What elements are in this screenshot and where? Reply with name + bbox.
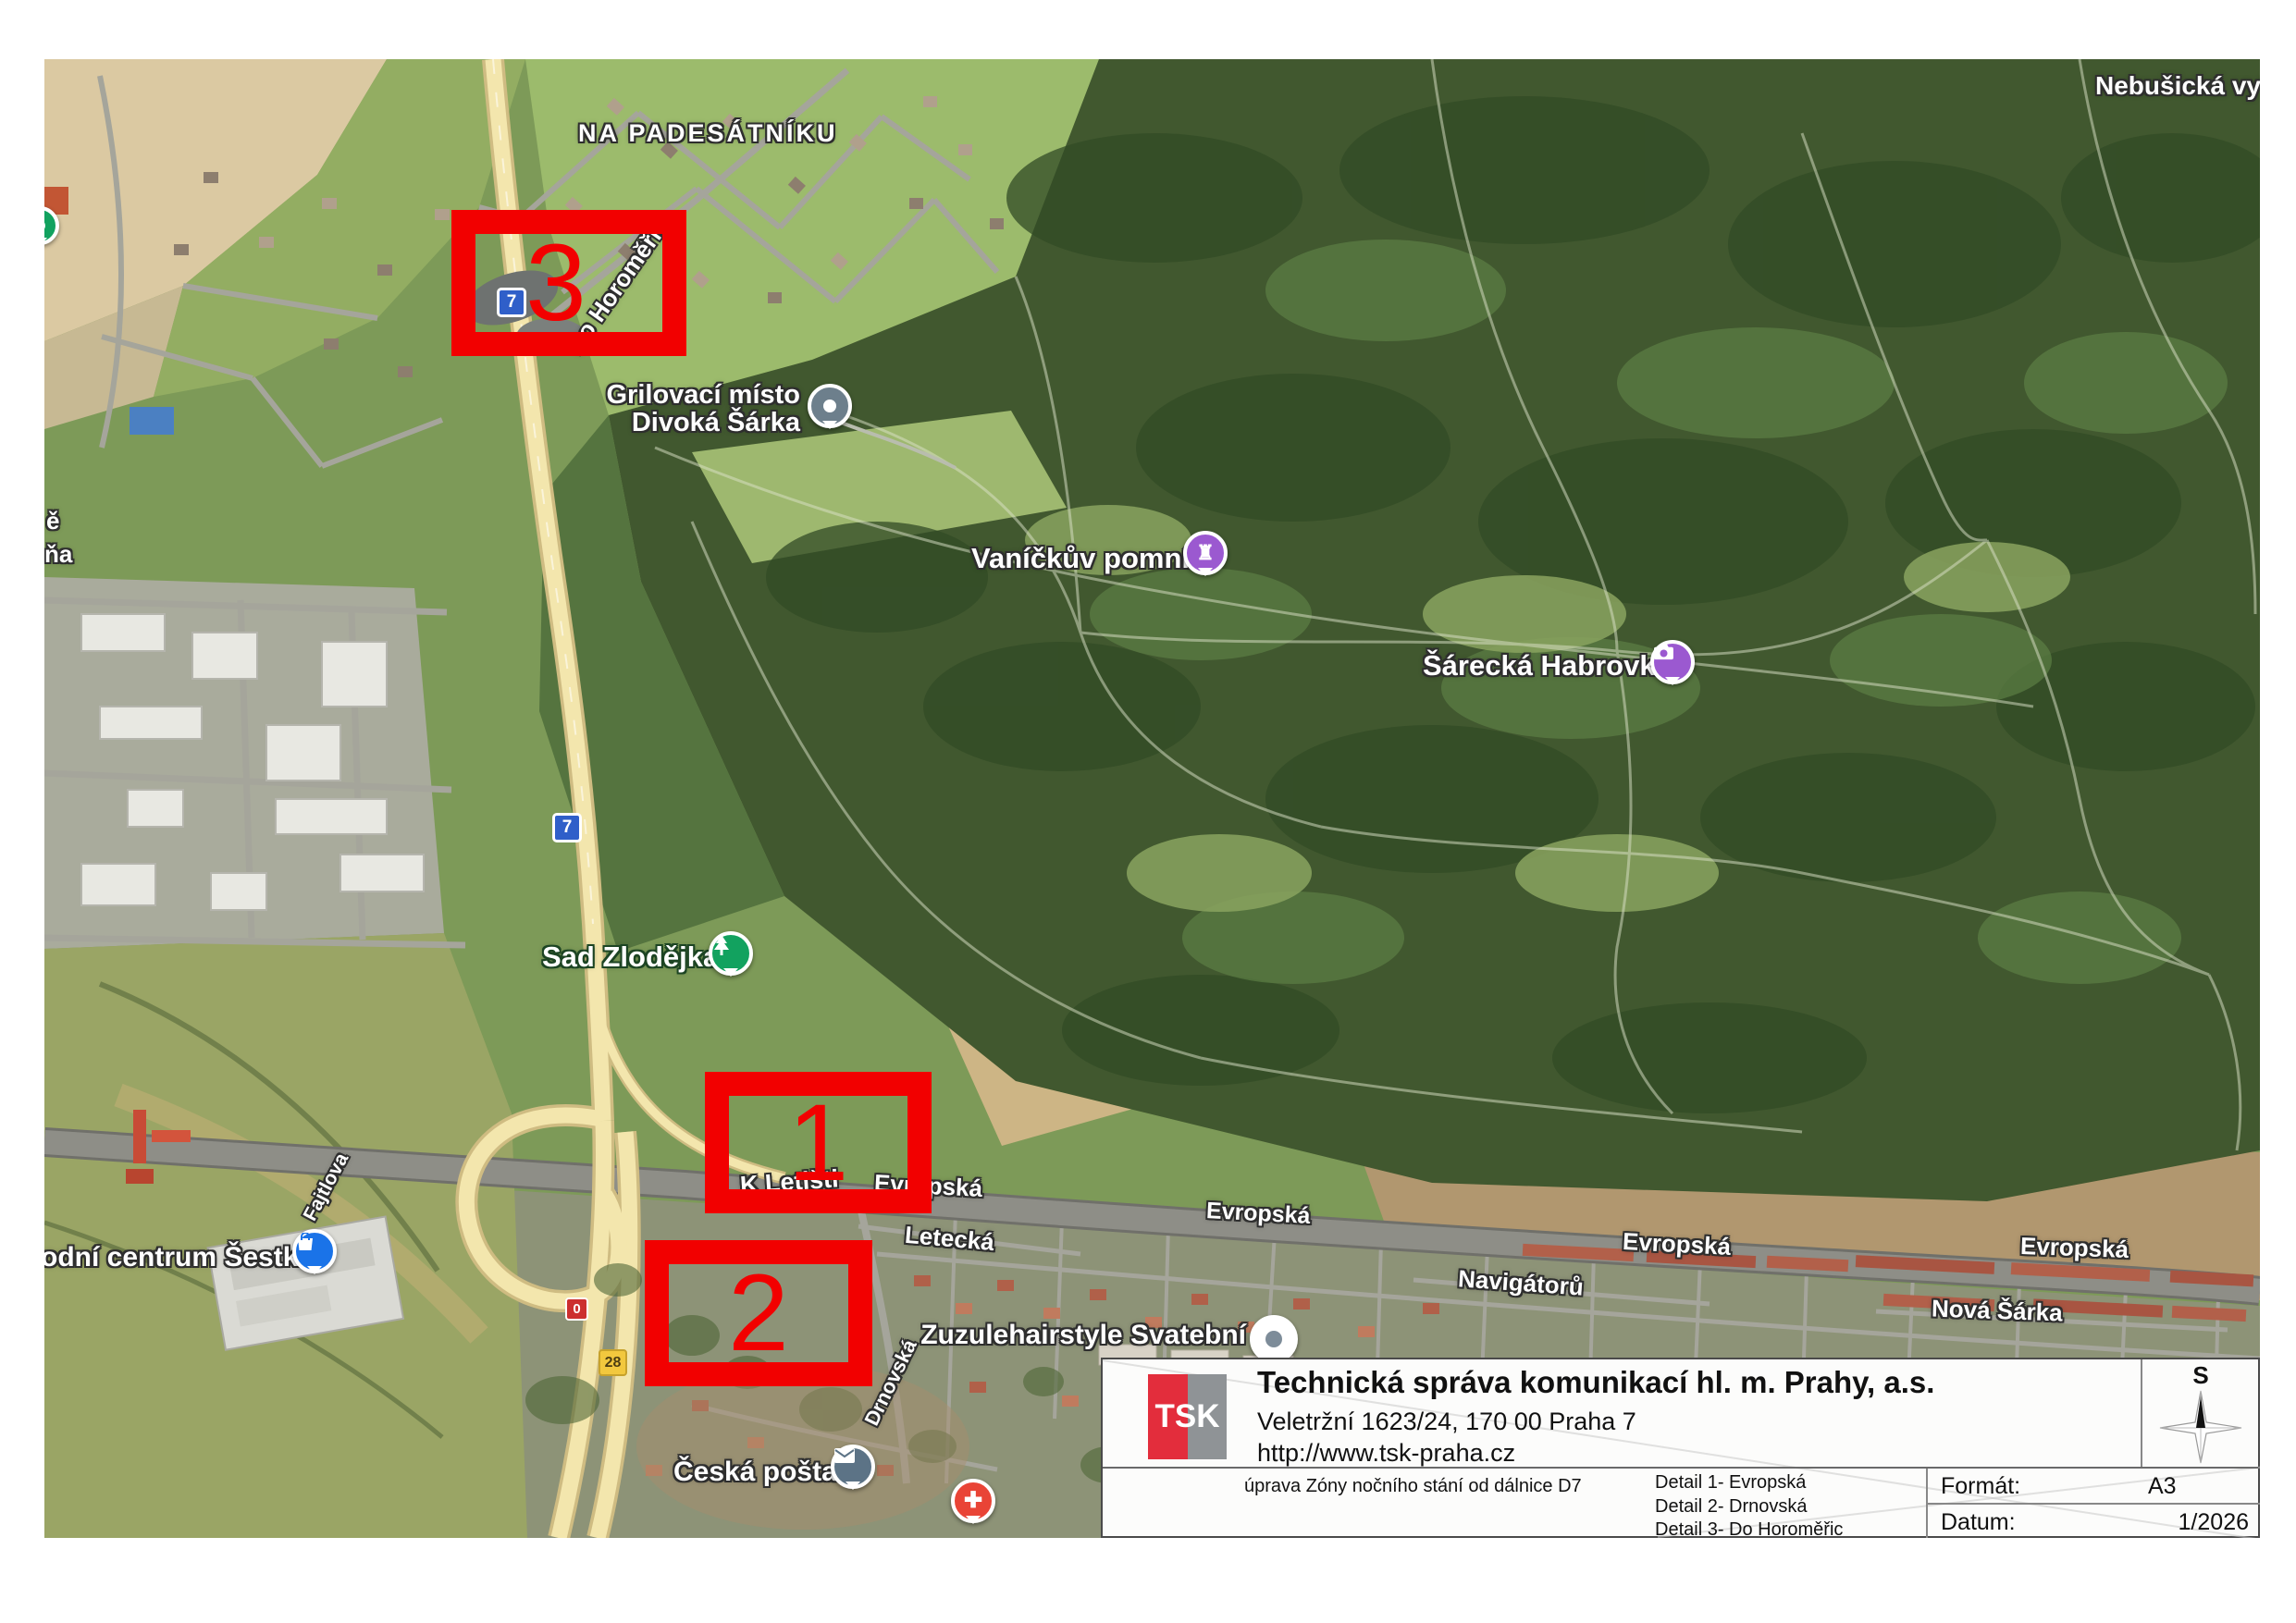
monument-pin-icon: ♜ [1183,531,1228,575]
date-row: Datum: 1/2026 [1928,1505,2260,1538]
format-label: Formát: [1941,1473,2020,1500]
park-pin-icon [709,931,753,976]
poi-label-zuzule: Zuzulehairstyle Svatební [920,1321,1246,1350]
detail-box-1: 1 [705,1072,932,1213]
format-value: A3 [2148,1473,2177,1500]
monument-icon: ♜ [1196,543,1215,563]
detail-box-3: 3 [451,210,686,356]
project-title: úprava Zóny nočního stání od dálnice D7 [1244,1476,1582,1497]
title-block-header: TSK Technická správa komunikací hl. m. P… [1103,1359,2258,1469]
poi-label-vanickuv: Vaníčkův pomník [971,544,1205,574]
poi-label-grilovaci: Grilovací místo Divoká Šárka [606,381,800,437]
company-name: Technická správa komunikací hl. m. Prahy… [1257,1365,1934,1400]
title-block: TSK Technická správa komunikací hl. m. P… [1101,1358,2260,1538]
detail-number-1: 1 [788,1088,849,1198]
dot-icon [44,220,45,231]
cross-icon: ✚ [964,1490,982,1512]
compass-label: S [2192,1361,2208,1389]
dot-icon [1265,1331,1282,1347]
road-shield-d7-mid: 7 [552,813,582,842]
street-label-evropska-2: Evropská [1205,1199,1311,1228]
map-sheet: NA PADESÁTNÍKU Nebušická vyh ě ňa Do Hor… [0,0,2296,1623]
post-office-pin-icon [831,1445,875,1489]
salon-pin-icon [1250,1315,1298,1363]
north-arrow-icon: S [2142,1359,2258,1467]
poi-label-sarecka: Šárecká Habrovka [1423,651,1672,682]
compass-cell: S [2141,1359,2258,1467]
detail-list: Detail 1- Evropská Detail 2- Drnovská De… [1655,1471,1843,1538]
picnic-pin-icon [808,384,852,428]
date-label: Datum: [1941,1509,2016,1536]
area-label-nebusicka: Nebušická vyh [2095,72,2260,99]
health-pin-icon: ✚ [951,1479,995,1523]
edge-label-fragment-e: ě [46,509,59,534]
detail-number-3: 3 [525,228,586,338]
poi-label-sad-zlodejka: Sad Zlodějka [542,942,719,973]
company-address: Veletržní 1623/24, 170 00 Praha 7 [1257,1408,1636,1436]
detail-list-item-1: Detail 1- Evropská [1655,1471,1843,1495]
detail-box-2: 2 [645,1240,872,1386]
tree-icon [712,935,731,955]
photo-spot-pin-icon [1650,640,1695,684]
envelope-icon [834,1448,855,1463]
street-label-evropska-4: Evropská [2020,1234,2129,1262]
detail-list-item-3: Detail 3- Do Horoměřic [1655,1518,1843,1538]
tsk-logo: TSK [1148,1374,1227,1459]
detail-list-item-2: Detail 2- Drnovská [1655,1495,1843,1519]
poi-label-sestka: odní centrum Šestka [44,1243,314,1273]
satellite-map: NA PADESÁTNÍKU Nebušická vyh ě ňa Do Hor… [44,59,2260,1538]
edge-label-fragment-na: ňa [44,542,72,567]
poi-label-ceska-posta: Česká pošta [673,1457,837,1487]
poi-label-grilovaci-line2: Divoká Šárka [606,409,800,436]
road-shield-0: 0 [565,1297,588,1321]
detail-number-2: 2 [728,1259,789,1368]
road-shield-28: 28 [599,1349,627,1376]
street-label-nova-sarka: Nová Šárka [1932,1297,2064,1326]
poi-label-grilovaci-line1: Grilovací místo [606,381,800,409]
format-row: Formát: A3 [1928,1469,2260,1505]
shopping-bag-icon [296,1233,315,1251]
shopping-pin-icon [292,1229,337,1273]
format-date-column: Formát: A3 Datum: 1/2026 [1926,1469,2260,1538]
map-terrain [44,59,2260,1538]
company-url: http://www.tsk-praha.cz [1257,1439,1515,1468]
area-label-na-padesatniku: NA PADESÁTNÍKU [578,120,838,146]
street-label-evropska-3: Evropská [1622,1229,1731,1260]
camera-icon [1654,644,1674,660]
logo-text: TSK [1148,1374,1227,1459]
title-block-table: úprava Zóny nočního stání od dálnice D7 … [1103,1469,2258,1536]
dot-icon [823,400,836,412]
date-value: 1/2026 [2179,1509,2249,1536]
